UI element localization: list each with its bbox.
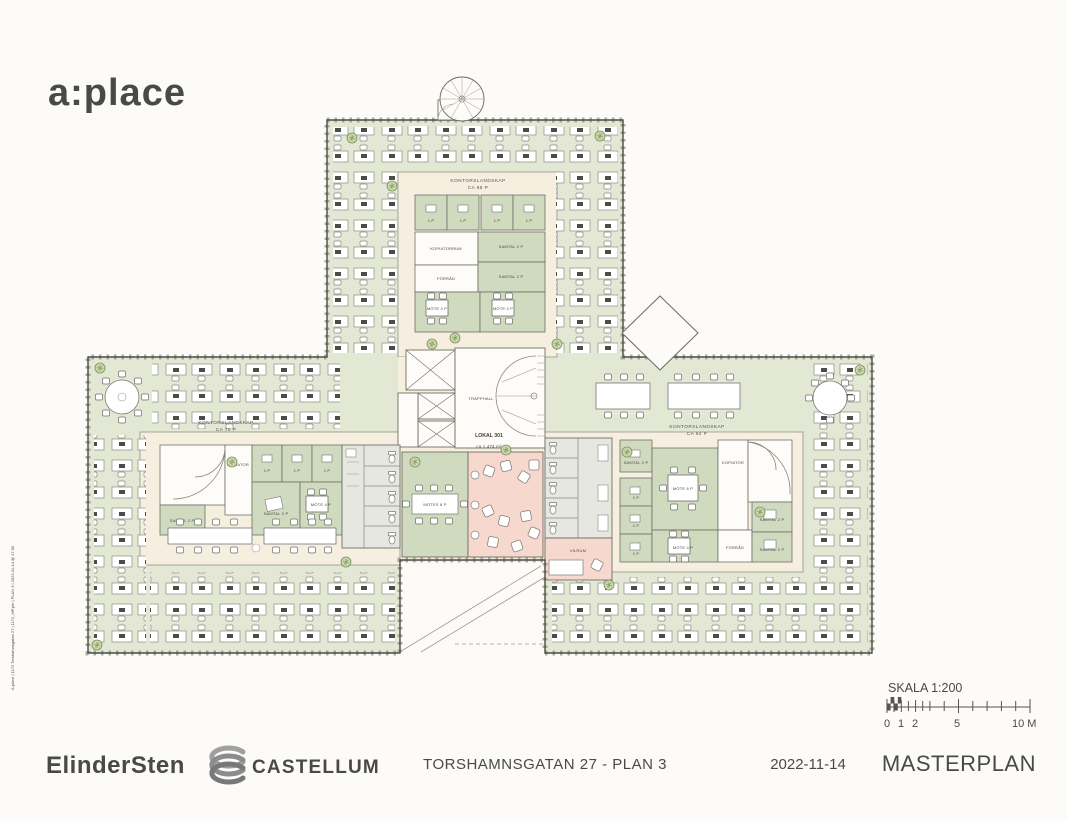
svg-text:SAMTAL 2 P: SAMTAL 2 P (264, 511, 289, 516)
svg-text:KOPIATORRUM: KOPIATORRUM (430, 246, 462, 251)
svg-text:1 P: 1 P (526, 218, 533, 223)
svg-text:CA 62 P: CA 62 P (687, 431, 707, 437)
svg-text:ca 1 474 m²: ca 1 474 m² (476, 444, 502, 449)
wc-right (545, 438, 612, 538)
svg-text:KOPIATOR: KOPIATOR (722, 460, 744, 465)
svg-text:0: 0 (884, 718, 890, 730)
elindersten-logo: ElinderSten (46, 752, 185, 779)
trapphall-label: TRAPPHALL (468, 396, 494, 401)
svg-text:1 P: 1 P (494, 218, 501, 223)
svg-text:SAMTAL 2 P: SAMTAL 2 P (760, 517, 785, 522)
svg-text:1 P: 1 P (633, 551, 640, 556)
svg-text:SAMTAL 2 P: SAMTAL 2 P (499, 274, 524, 279)
svg-text:KONTORSLANDSKAP: KONTORSLANDSKAP (450, 178, 505, 184)
svg-text:10 M: 10 M (1012, 718, 1036, 730)
svg-text:MÖTE 4 P: MÖTE 4 P (427, 306, 447, 311)
project-title: TORSHAMNSGATAN 27 - PLAN 3 (423, 756, 667, 773)
svg-text:2: 2 (912, 718, 918, 730)
svg-text:KONTORSLANDSKAP: KONTORSLANDSKAP (669, 424, 724, 430)
svg-text:1 P: 1 P (324, 468, 331, 473)
svg-text:5: 5 (954, 718, 960, 730)
meeting-room-8p: MÖTES 8 P (402, 452, 468, 557)
svg-text:1: 1 (898, 718, 904, 730)
wc-left (342, 445, 400, 548)
drawing-sheet: 1 P 1 P 1 P 1 P KOPIATORRUM FÖRRÅD SAMTA… (0, 0, 1067, 821)
svg-text:MÖTES 8 P: MÖTES 8 P (423, 502, 446, 507)
svg-text:1 P: 1 P (460, 218, 467, 223)
castellum-icon (212, 748, 243, 782)
plot-stamp: A:place | 1172 Torshamnsgatan 27 | 1172_… (10, 545, 15, 690)
svg-text:1 P: 1 P (294, 468, 301, 473)
sheet-date: 2022-11-14 (770, 756, 846, 773)
footer: ElinderSten CASTELLUM TORSHAMNSGATAN 27 … (46, 748, 1036, 782)
scale-label: SKALA 1:200 (888, 681, 962, 695)
floor-plan: 1 P 1 P 1 P 1 P KOPIATORRUM FÖRRÅD SAMTA… (88, 77, 872, 653)
castellum-logo: CASTELLUM (252, 757, 380, 778)
svg-text:CA 70 P: CA 70 P (216, 427, 236, 433)
svg-text:FÖRRÅD: FÖRRÅD (726, 545, 744, 550)
svg-text:1 P: 1 P (264, 468, 271, 473)
scale-bar: SKALA 1:200 0 1 2 5 10 M (884, 681, 1036, 730)
lounge (468, 452, 543, 557)
svg-text:LOKAL 301: LOKAL 301 (475, 433, 503, 439)
entrance-canopy (403, 566, 545, 652)
svg-text:SAMTAL 2 P: SAMTAL 2 P (760, 547, 785, 552)
svg-text:MÖTE 4 P: MÖTE 4 P (311, 502, 331, 507)
svg-text:SAMTAL 2 P: SAMTAL 2 P (624, 460, 649, 465)
svg-text:KONTORSLANDSKAP: KONTORSLANDSKAP (198, 420, 253, 426)
vilrum: VILRUM (545, 538, 612, 580)
svg-text:FÖRRÅD: FÖRRÅD (437, 276, 455, 281)
svg-text:SAMTAL 2 P: SAMTAL 2 P (499, 244, 524, 249)
spiral-stair (438, 77, 484, 121)
svg-text:MÖTE 4 P: MÖTE 4 P (493, 306, 513, 311)
svg-text:MÖTE 6 P: MÖTE 6 P (673, 486, 693, 491)
svg-text:CA 66 P: CA 66 P (468, 185, 488, 191)
doc-type: MASTERPLAN (882, 751, 1036, 776)
svg-text:1 P: 1 P (428, 218, 435, 223)
elevator-bank (398, 350, 455, 447)
svg-text:1 P: 1 P (633, 495, 640, 500)
svg-text:MÖTE 4 P: MÖTE 4 P (673, 545, 693, 550)
svg-text:VILRUM: VILRUM (570, 548, 586, 553)
svg-text:1 P: 1 P (633, 523, 640, 528)
aplace-logo: a:place (48, 72, 186, 114)
